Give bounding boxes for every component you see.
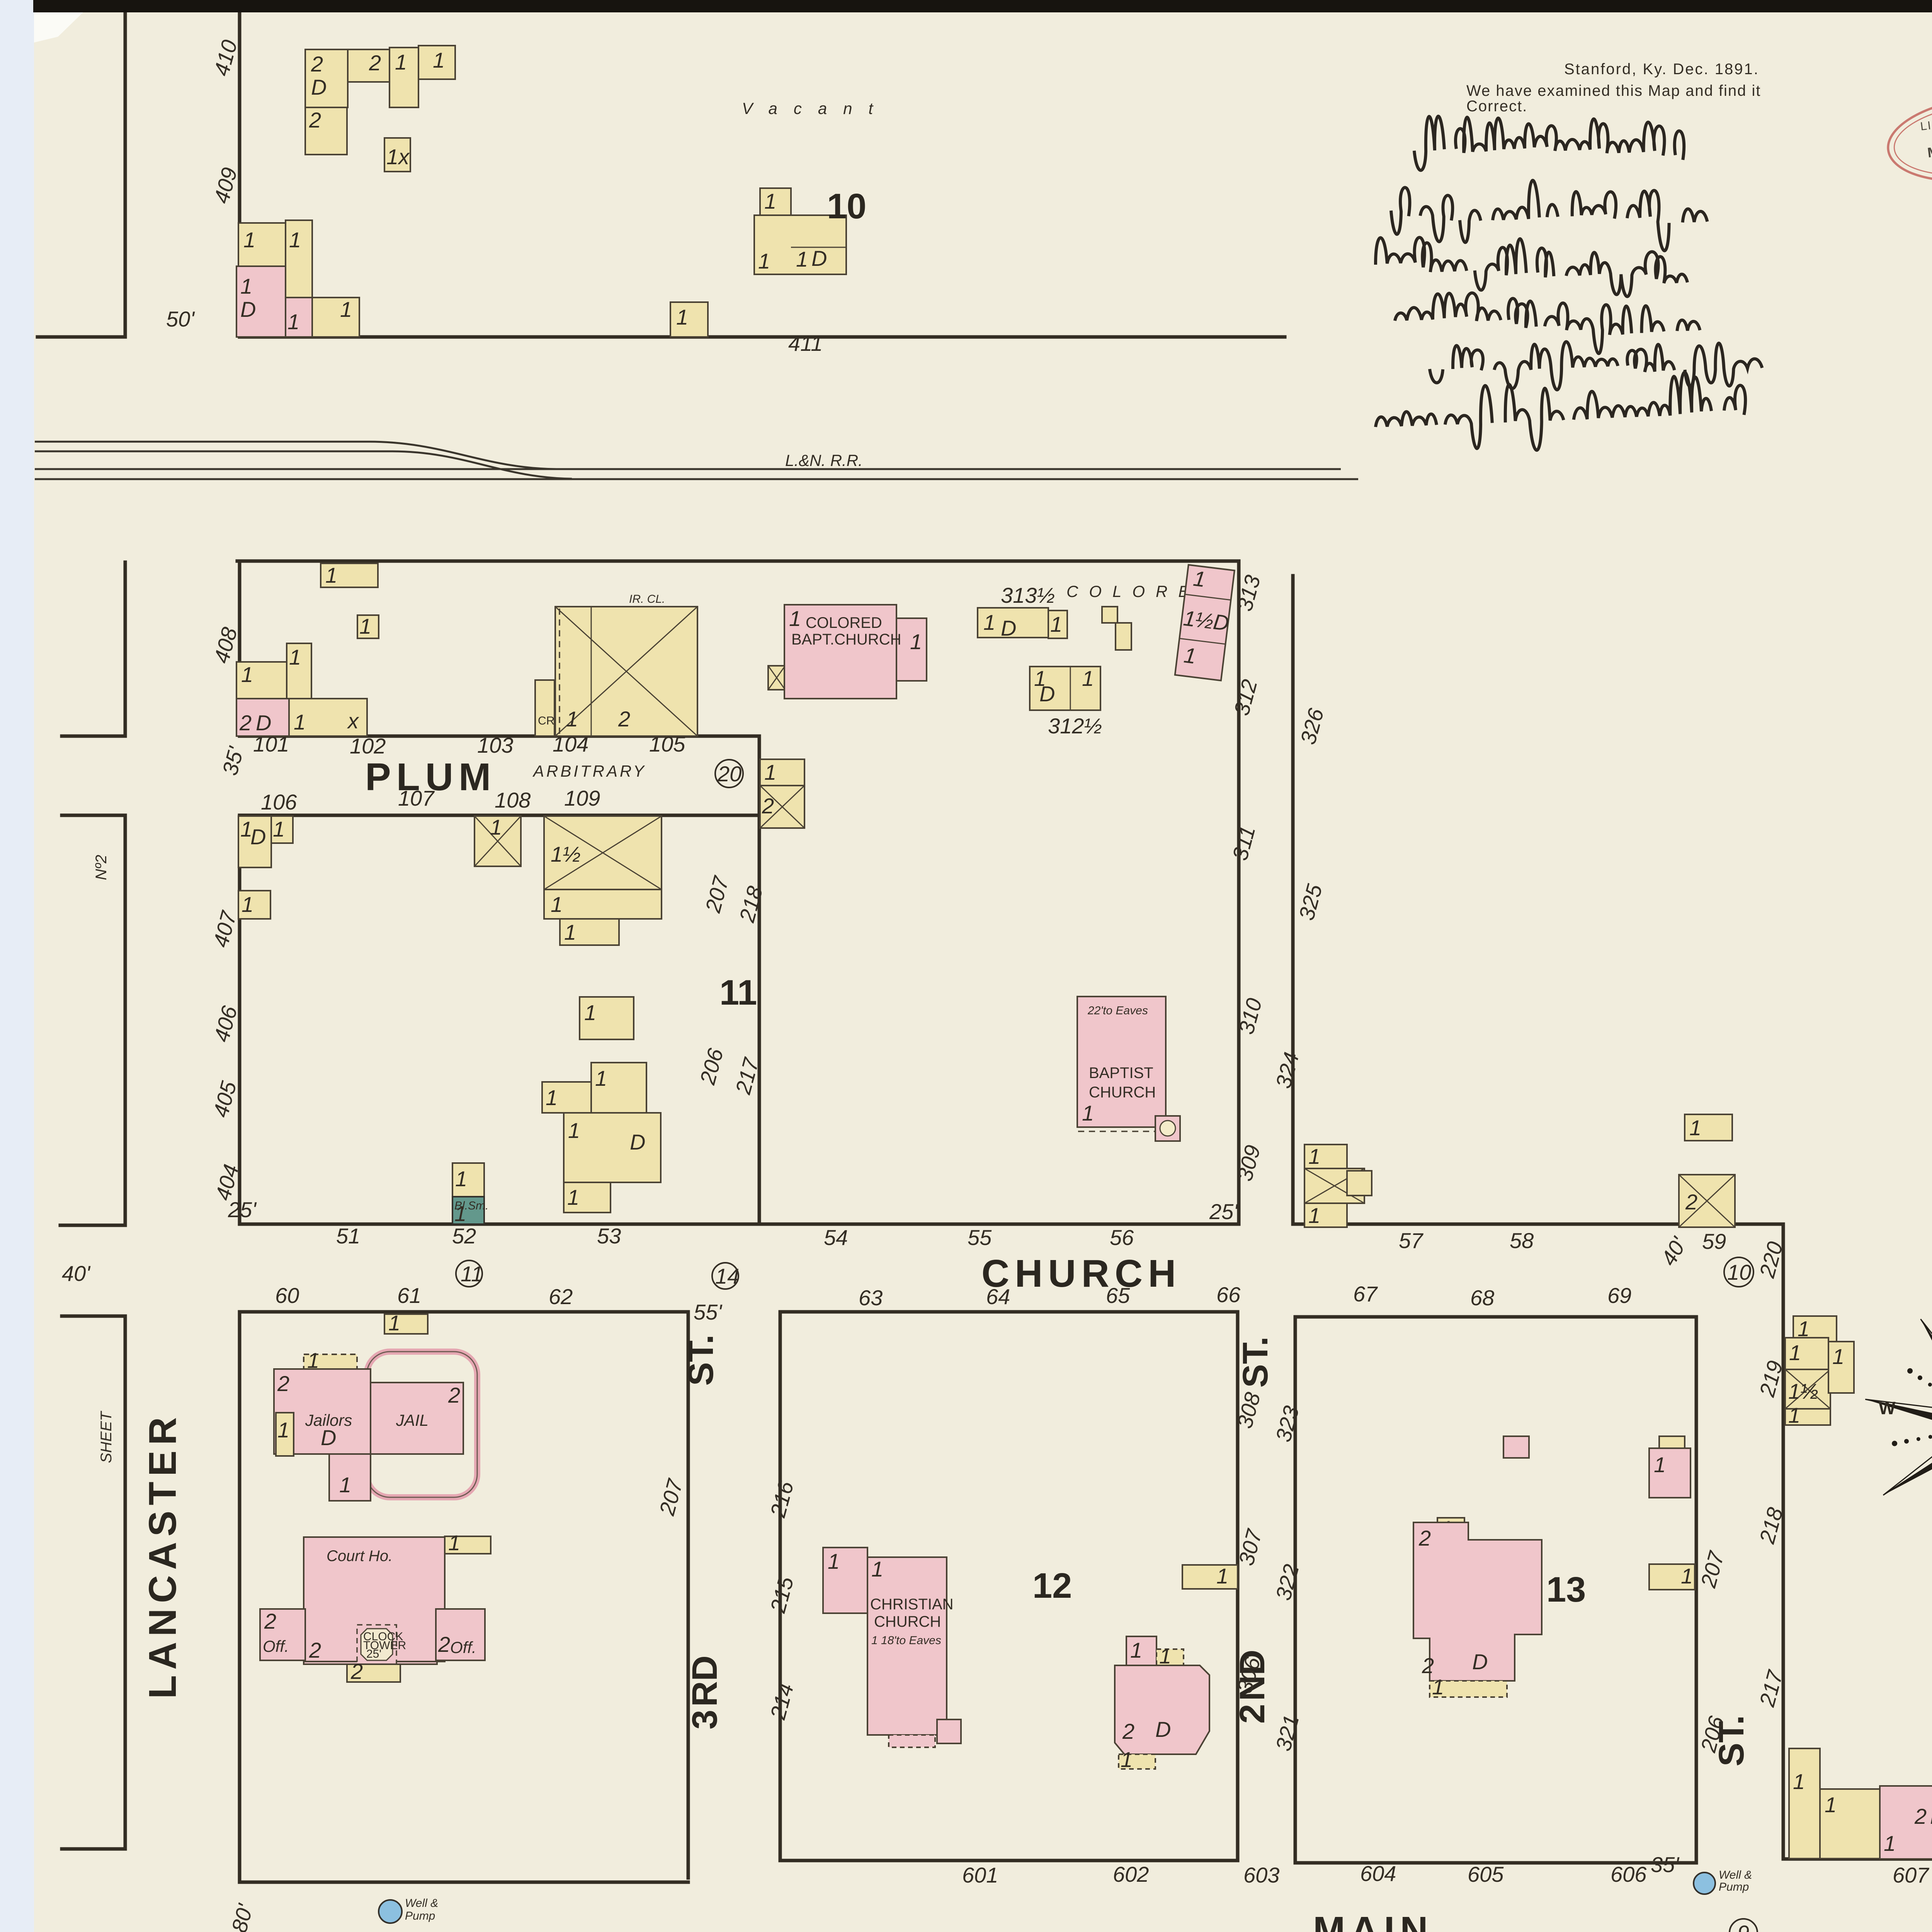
svg-text:1: 1 [289, 645, 301, 669]
svg-text:1: 1 [1832, 1344, 1844, 1369]
svg-text:10: 10 [827, 187, 866, 226]
svg-text:2: 2 [1418, 1526, 1431, 1550]
svg-text:57: 57 [1399, 1228, 1423, 1253]
svg-text:1: 1 [983, 610, 995, 634]
svg-text:12: 12 [1032, 1566, 1072, 1605]
svg-text:2: 2 [1122, 1719, 1134, 1743]
svg-text:1: 1 [796, 247, 808, 271]
svg-text:1: 1 [551, 892, 563, 917]
svg-text:605: 605 [1468, 1862, 1504, 1886]
svg-text:11: 11 [719, 973, 757, 1012]
svg-text:51: 51 [336, 1224, 360, 1248]
svg-text:11: 11 [461, 1262, 483, 1286]
svg-text:1: 1 [676, 305, 688, 329]
svg-text:1: 1 [433, 48, 445, 72]
svg-text:1: 1 [1130, 1638, 1142, 1662]
svg-text:1: 1 [871, 1557, 883, 1581]
svg-text:D: D [1039, 682, 1055, 706]
svg-text:1: 1 [564, 920, 576, 944]
svg-text:1: 1 [546, 1085, 558, 1110]
svg-text:1: 1 [910, 629, 922, 654]
svg-text:Off.: Off. [450, 1638, 476, 1656]
svg-text:1: 1 [388, 1311, 400, 1335]
svg-text:2: 2 [1422, 1653, 1434, 1678]
svg-text:Pump: Pump [405, 1910, 435, 1922]
svg-text:50': 50' [166, 307, 195, 331]
svg-text:2: 2 [239, 711, 252, 735]
svg-text:2: 2 [309, 1638, 321, 1662]
svg-text:We have examined this Map and: We have examined this Map and find it [1466, 82, 1761, 99]
svg-text:1: 1 [395, 50, 407, 74]
svg-text:59: 59 [1702, 1229, 1726, 1253]
svg-text:25': 25' [228, 1197, 257, 1222]
svg-text:1: 1 [758, 249, 770, 273]
svg-text:66: 66 [1216, 1282, 1241, 1307]
svg-text:65: 65 [1106, 1283, 1130, 1308]
svg-text:1: 1 [1159, 1644, 1171, 1668]
svg-text:54: 54 [824, 1225, 848, 1250]
svg-text:108: 108 [495, 788, 531, 812]
svg-text:2: 2 [369, 51, 381, 75]
svg-text:D: D [256, 711, 271, 735]
svg-text:1: 1 [789, 606, 801, 631]
svg-text:1: 1 [448, 1531, 460, 1555]
svg-text:2: 2 [311, 52, 323, 76]
svg-text:1: 1 [455, 1167, 467, 1191]
svg-text:2: 2 [309, 108, 321, 132]
svg-text:2: 2 [1914, 1804, 1927, 1828]
svg-text:1: 1 [566, 707, 578, 731]
svg-text:20: 20 [717, 762, 742, 786]
svg-text:1: 1 [287, 310, 299, 334]
svg-text:CHRISTIAN: CHRISTIAN [870, 1596, 954, 1613]
svg-text:1: 1 [289, 228, 301, 252]
svg-text:56: 56 [1110, 1225, 1134, 1250]
svg-text:1: 1 [595, 1066, 607, 1090]
svg-text:Nº2: Nº2 [93, 855, 110, 880]
svg-text:601: 601 [962, 1863, 998, 1887]
svg-text:64: 64 [986, 1284, 1010, 1309]
svg-text:Stanford, Ky. Dec. 1891.: Stanford, Ky. Dec. 1891. [1564, 61, 1759, 78]
svg-text:1: 1 [1082, 1101, 1094, 1125]
svg-text:L.&N. R.R.: L.&N. R.R. [785, 451, 863, 469]
svg-text:1x: 1x [386, 145, 410, 169]
svg-text:1: 1 [1216, 1564, 1228, 1588]
svg-text:ARBITRARY: ARBITRARY [532, 762, 646, 780]
svg-text:SHEET: SHEET [98, 1411, 115, 1463]
svg-text:1: 1 [490, 815, 502, 839]
svg-text:1: 1 [277, 1418, 289, 1442]
svg-text:22'to Eaves: 22'to Eaves [1087, 1004, 1148, 1017]
svg-text:69: 69 [1607, 1283, 1631, 1308]
svg-text:Court Ho.: Court Ho. [327, 1548, 393, 1565]
svg-text:1: 1 [828, 1549, 840, 1573]
svg-text:D: D [240, 297, 256, 321]
svg-text:COLORED: COLORED [806, 614, 882, 631]
svg-text:2: 2 [762, 794, 774, 818]
svg-text:1: 1 [273, 817, 285, 841]
svg-text:1: 1 [240, 274, 252, 298]
svg-text:1½: 1½ [551, 842, 581, 866]
svg-text:35': 35' [1651, 1852, 1680, 1877]
svg-text:D: D [321, 1425, 336, 1450]
svg-text:2: 2 [1685, 1190, 1697, 1214]
svg-text:1: 1 [241, 662, 253, 687]
svg-text:IR. CL.: IR. CL. [629, 593, 665, 605]
svg-text:101: 101 [253, 732, 289, 756]
svg-text:61: 61 [397, 1283, 421, 1308]
svg-text:1: 1 [339, 1473, 351, 1497]
svg-text:Vacant: Vacant [742, 99, 889, 117]
svg-text:1: 1 [764, 189, 776, 213]
svg-text:9: 9 [1737, 1921, 1749, 1932]
svg-text:604: 604 [1360, 1861, 1396, 1886]
svg-text:JAIL: JAIL [396, 1411, 429, 1429]
svg-text:67: 67 [1353, 1282, 1378, 1306]
svg-text:BAPTIST: BAPTIST [1089, 1065, 1153, 1082]
svg-text:2: 2 [618, 707, 630, 731]
svg-text:1: 1 [454, 1201, 466, 1226]
svg-text:1: 1 [1050, 612, 1062, 636]
svg-text:106: 106 [261, 790, 297, 814]
svg-text:104: 104 [553, 732, 588, 756]
svg-text:2: 2 [448, 1383, 460, 1407]
svg-text:53: 53 [597, 1224, 621, 1248]
svg-text:Pump: Pump [1719, 1881, 1749, 1893]
svg-text:1: 1 [1789, 1340, 1801, 1365]
svg-text:1: 1 [1825, 1793, 1837, 1817]
svg-text:411: 411 [788, 331, 823, 355]
svg-text:58: 58 [1510, 1228, 1534, 1253]
svg-text:CHURCH: CHURCH [874, 1613, 941, 1630]
svg-text:W: W [1879, 1398, 1896, 1418]
svg-text:68: 68 [1470, 1286, 1494, 1310]
svg-text:25': 25' [1209, 1199, 1238, 1224]
svg-text:55: 55 [968, 1225, 992, 1250]
svg-text:1: 1 [764, 760, 776, 784]
svg-text:603: 603 [1243, 1863, 1279, 1887]
svg-text:3 RD: 3 RD [685, 1655, 724, 1730]
svg-text:1: 1 [1793, 1769, 1805, 1794]
svg-text:D: D [630, 1130, 645, 1154]
svg-text:60: 60 [275, 1283, 299, 1308]
svg-text:1½: 1½ [1788, 1379, 1818, 1403]
svg-text:109: 109 [564, 786, 600, 810]
svg-text:1: 1 [1654, 1452, 1666, 1477]
svg-text:2: 2 [277, 1371, 289, 1396]
svg-text:D: D [1472, 1650, 1488, 1674]
svg-text:13: 13 [1546, 1570, 1586, 1609]
svg-text:CHURCH: CHURCH [981, 1252, 1181, 1295]
svg-text:1 18'to Eaves: 1 18'to Eaves [871, 1634, 941, 1647]
svg-text:313½: 313½ [1001, 583, 1055, 607]
svg-text:D: D [311, 75, 327, 99]
svg-text:62: 62 [549, 1284, 573, 1309]
svg-text:Well &: Well & [405, 1897, 438, 1910]
svg-text:10: 10 [1727, 1260, 1751, 1284]
svg-text:Off.: Off. [263, 1637, 289, 1655]
svg-text:102: 102 [350, 734, 386, 758]
svg-text:312½: 312½ [1048, 714, 1102, 738]
svg-text:1: 1 [359, 614, 371, 638]
svg-text:1: 1 [1308, 1144, 1320, 1168]
svg-text:CHURCH: CHURCH [1089, 1084, 1156, 1101]
svg-text:x: x [347, 709, 359, 733]
svg-text:BAPT.CHURCH: BAPT.CHURCH [791, 631, 901, 648]
svg-text:1: 1 [1121, 1747, 1133, 1772]
svg-text:602: 602 [1113, 1862, 1149, 1886]
svg-text:D: D [811, 246, 827, 270]
svg-text:1: 1 [241, 892, 253, 917]
svg-text:2: 2 [438, 1632, 450, 1656]
svg-text:1: 1 [584, 1000, 596, 1025]
svg-text:103: 103 [477, 733, 513, 757]
svg-text:1: 1 [340, 297, 352, 321]
svg-text:MAIN: MAIN [1313, 1909, 1434, 1932]
svg-text:1: 1 [243, 228, 255, 252]
svg-text:40': 40' [62, 1261, 91, 1286]
svg-text:Correct.: Correct. [1466, 98, 1527, 115]
svg-text:606: 606 [1611, 1862, 1647, 1886]
svg-text:607: 607 [1893, 1863, 1929, 1887]
svg-text:1: 1 [1681, 1564, 1693, 1588]
svg-text:1: 1 [1082, 666, 1094, 690]
svg-text:D: D [1001, 616, 1016, 640]
svg-text:LANCASTER: LANCASTER [141, 1412, 184, 1699]
svg-text:1: 1 [294, 710, 306, 734]
svg-text:1: 1 [1788, 1403, 1800, 1427]
svg-text:1: 1 [1689, 1116, 1701, 1140]
svg-text:2: 2 [350, 1659, 363, 1684]
svg-text:63: 63 [859, 1286, 883, 1310]
svg-text:52: 52 [452, 1224, 476, 1248]
svg-text:55': 55' [694, 1300, 723, 1324]
svg-text:1: 1 [1432, 1675, 1444, 1699]
svg-text:ST.: ST. [681, 1335, 721, 1386]
svg-text:1: 1 [567, 1185, 579, 1209]
svg-text:105: 105 [649, 732, 685, 756]
svg-text:D: D [1930, 1804, 1932, 1828]
svg-text:25': 25' [366, 1648, 381, 1660]
svg-text:1: 1 [1308, 1203, 1320, 1228]
svg-text:1: 1 [325, 563, 337, 587]
svg-text:D: D [250, 825, 266, 849]
svg-text:107: 107 [398, 786, 435, 810]
svg-text:D: D [1155, 1717, 1171, 1742]
svg-text:Well &: Well & [1719, 1869, 1752, 1881]
svg-text:1: 1 [568, 1118, 580, 1143]
svg-text:14: 14 [715, 1264, 739, 1288]
svg-text:2: 2 [264, 1609, 276, 1633]
svg-text:1: 1 [1884, 1831, 1896, 1855]
svg-text:ST.: ST. [1236, 1337, 1275, 1388]
